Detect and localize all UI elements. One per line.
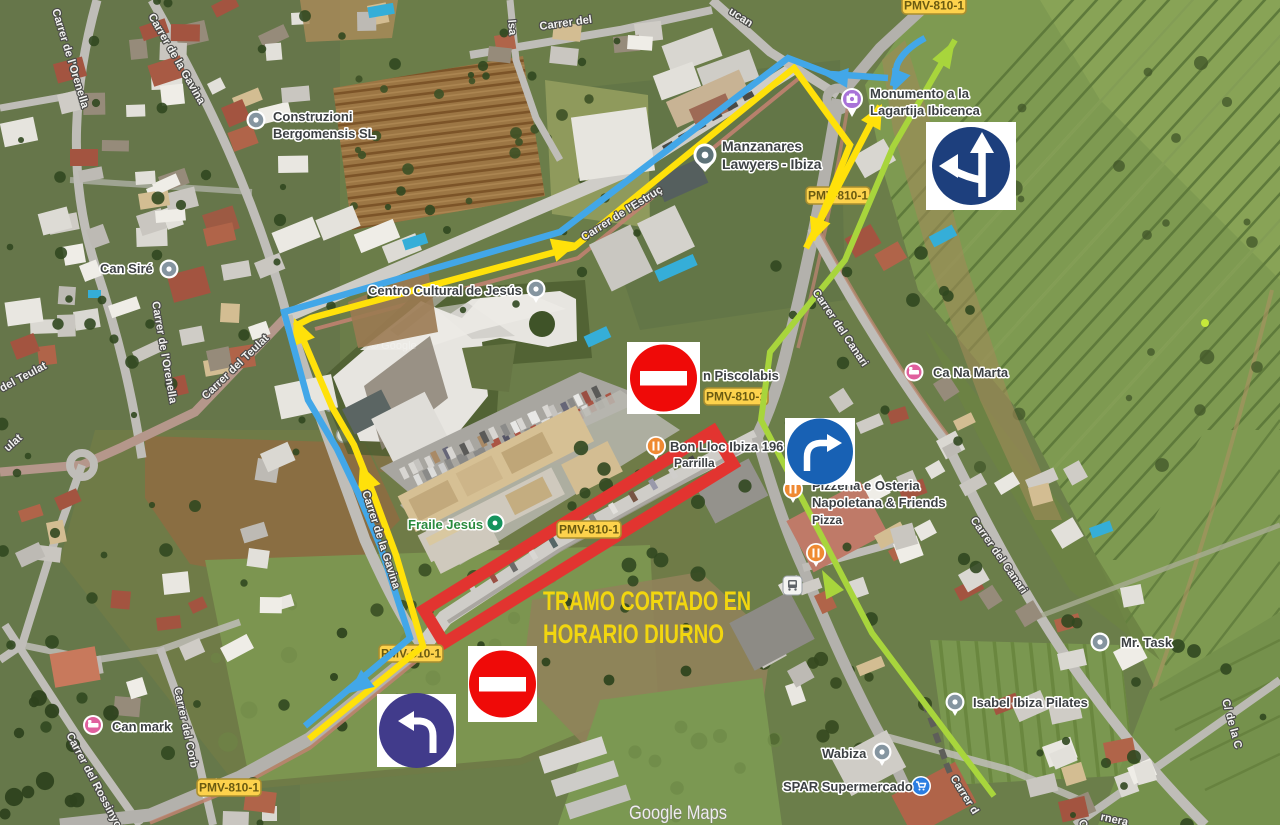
svg-text:Mr. Task: Mr. Task bbox=[1121, 635, 1173, 650]
svg-text:lsa: lsa bbox=[505, 19, 518, 36]
svg-text:n Piscolabis: n Piscolabis bbox=[703, 368, 779, 383]
svg-text:HORARIO DIURNO: HORARIO DIURNO bbox=[543, 619, 724, 649]
svg-text:Can mark: Can mark bbox=[112, 719, 172, 734]
svg-text:TRAMO CORTADO EN: TRAMO CORTADO EN bbox=[543, 586, 751, 616]
svg-text:PMV-810-1: PMV-810-1 bbox=[904, 0, 964, 13]
svg-text:Wabiza: Wabiza bbox=[822, 746, 867, 761]
svg-text:Isabel Ibiza Pilates: Isabel Ibiza Pilates bbox=[973, 695, 1088, 710]
svg-text:Bon Lloc Ibiza 196: Bon Lloc Ibiza 196 bbox=[670, 439, 783, 454]
svg-text:Fraile Jesús: Fraile Jesús bbox=[408, 517, 483, 532]
svg-text:Google Maps: Google Maps bbox=[629, 802, 727, 824]
svg-text:Can Siré: Can Siré bbox=[100, 261, 153, 276]
svg-text:Pizza: Pizza bbox=[812, 513, 842, 527]
svg-text:Ca Na Marta: Ca Na Marta bbox=[933, 365, 1009, 380]
svg-text:PMV-810-1: PMV-810-1 bbox=[559, 523, 619, 537]
svg-text:Parrilla: Parrilla bbox=[674, 456, 715, 470]
svg-text:PMV-810-1: PMV-810-1 bbox=[199, 781, 259, 795]
svg-text:SPAR Supermercado: SPAR Supermercado bbox=[783, 779, 913, 794]
svg-text:PMV-810-1: PMV-810-1 bbox=[706, 390, 766, 404]
svg-text:Centro Cultural de Jesús: Centro Cultural de Jesús bbox=[368, 283, 522, 298]
